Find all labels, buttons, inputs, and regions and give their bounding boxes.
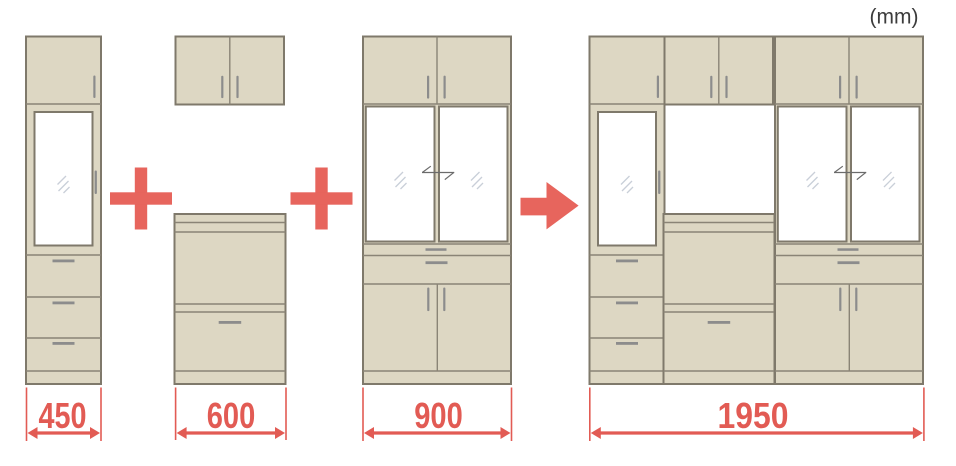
svg-text:(mm): (mm) [870,6,919,29]
svg-text:450: 450 [39,395,87,436]
svg-text:1950: 1950 [718,395,789,436]
svg-text:900: 900 [414,395,463,436]
svg-text:600: 600 [207,395,256,436]
